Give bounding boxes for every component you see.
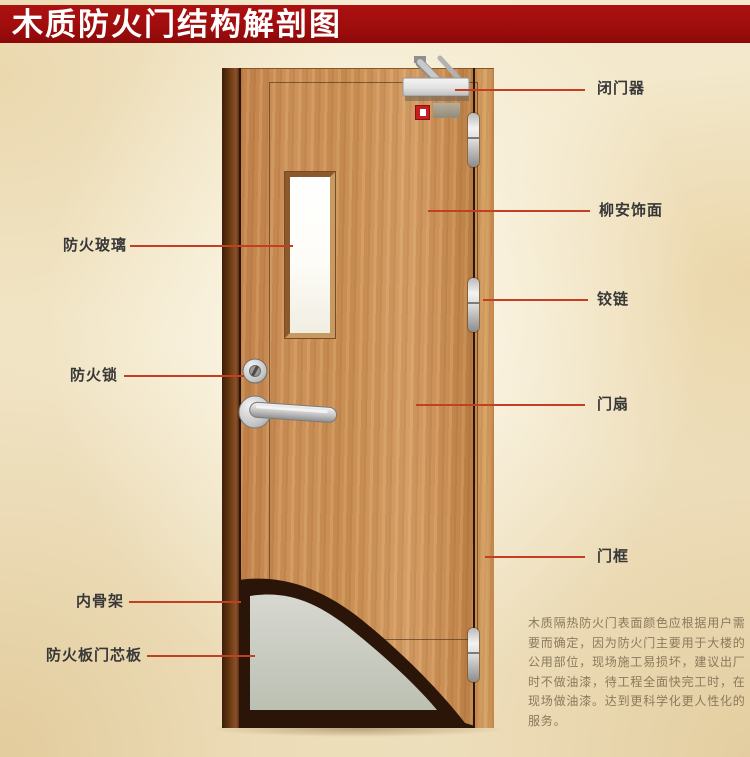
callout-line-fire-glass [130, 245, 293, 247]
callout-line-hinge [483, 299, 588, 301]
callout-line-door-closer [455, 89, 585, 91]
callout-line-lauan-veneer [428, 210, 590, 212]
door-hardware [232, 350, 362, 440]
callout-line-door-frame [485, 556, 585, 558]
door-closer-device [392, 54, 482, 116]
label-door-closer: 闭门器 [597, 81, 645, 97]
fire-glass-window [285, 172, 335, 338]
closer-body-shadow [405, 96, 469, 101]
cutaway-section [239, 573, 475, 728]
closer-body [403, 78, 469, 96]
hinge-top [468, 113, 479, 167]
callout-line-door-leaf [416, 404, 585, 406]
label-lauan-veneer: 柳安饰面 [599, 203, 663, 219]
callout-line-inner-skeleton [129, 601, 241, 603]
title-banner: 木质防火门结构解剖图 [0, 5, 750, 43]
closer-arm-link [440, 58, 460, 80]
description-text: 木质隔热防火门表面颜色应根据用户需要而确定，因为防火门主要用于大楼的公用部位，现… [528, 614, 748, 731]
door-assembly [222, 68, 494, 728]
fire-glass-pane [290, 177, 330, 333]
callout-line-fire-lock [124, 375, 244, 377]
label-door-frame: 门框 [597, 549, 629, 565]
label-fire-lock: 防火锁 [35, 368, 118, 384]
callout-line-fire-board-core [147, 655, 255, 657]
label-hinge: 铰链 [597, 292, 629, 308]
page-title: 木质防火门结构解剖图 [0, 5, 750, 44]
label-fire-board-core: 防火板门芯板 [28, 648, 142, 664]
label-inner-skeleton: 内骨架 [35, 594, 124, 610]
hinge-middle [468, 278, 479, 332]
label-fire-glass: 防火玻璃 [35, 238, 127, 254]
label-door-leaf: 门扇 [597, 397, 629, 413]
